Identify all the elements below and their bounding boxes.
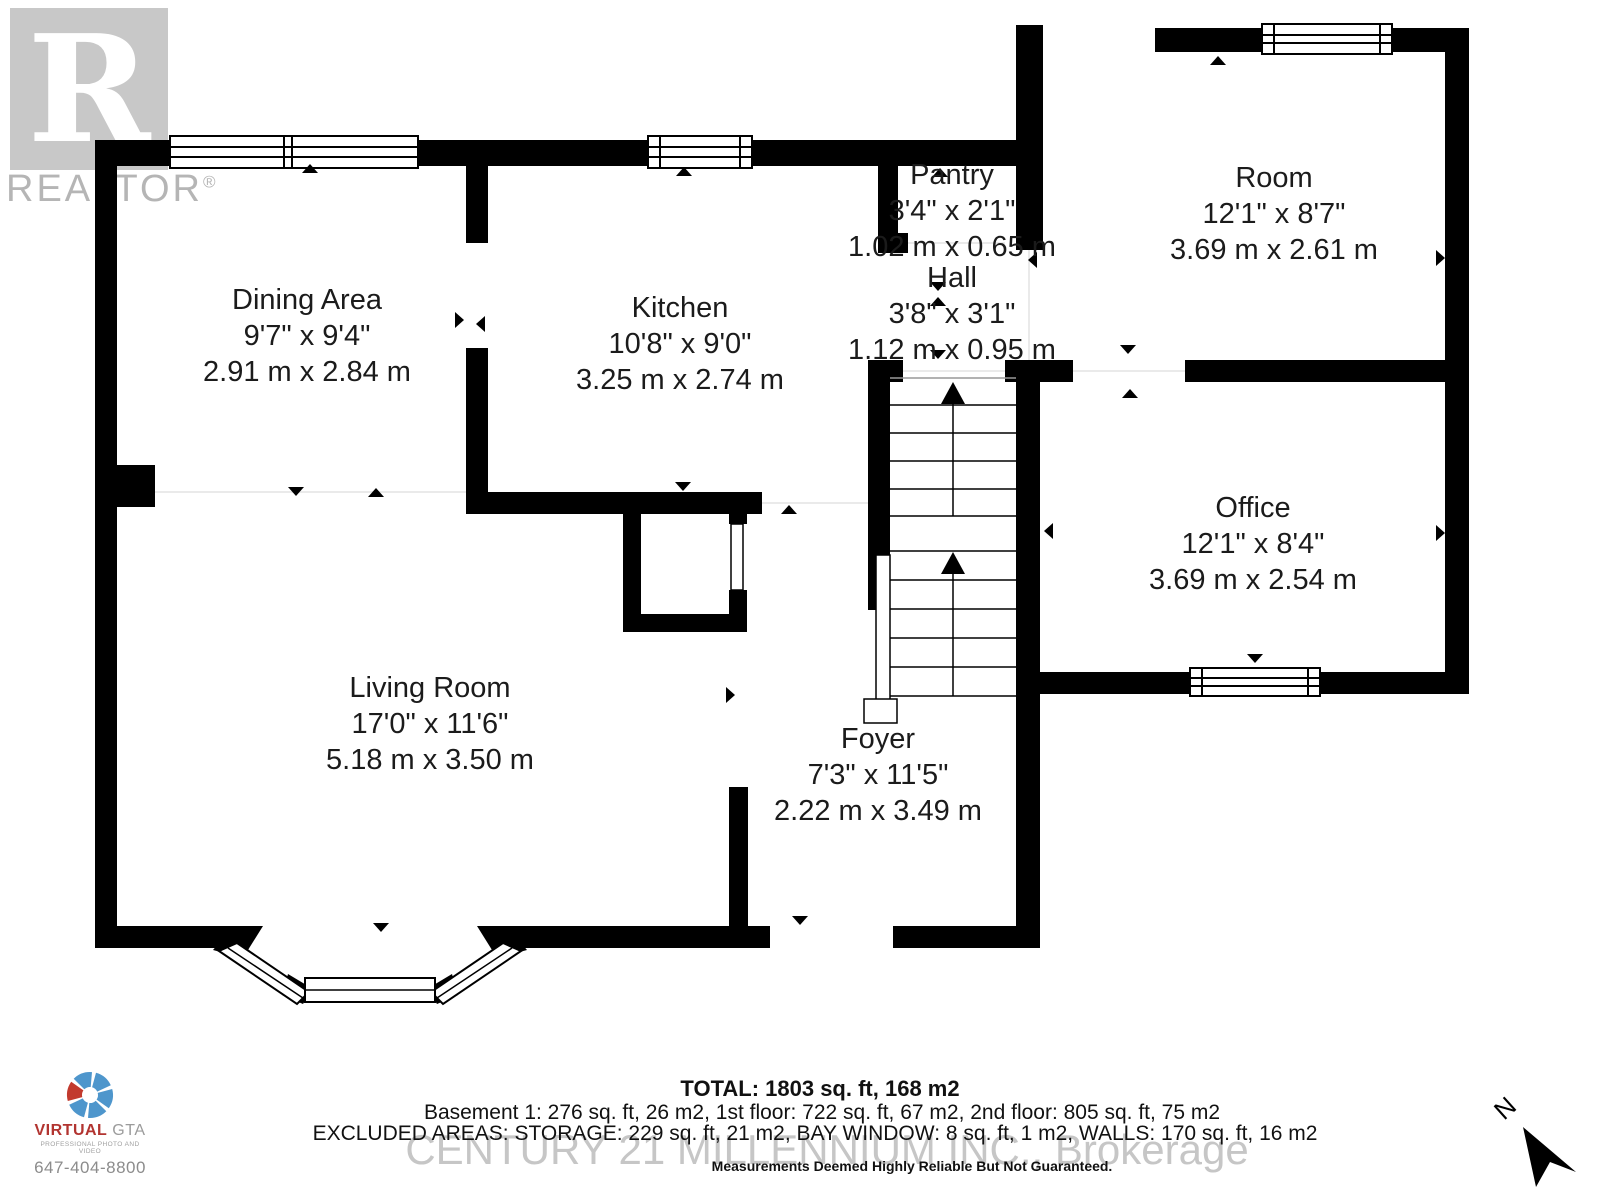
room-dim-imperial: 17'0" x 11'6" bbox=[326, 706, 534, 742]
room-name: Hall bbox=[848, 260, 1056, 296]
room-dim-imperial: 12'1" x 8'7" bbox=[1170, 196, 1378, 232]
room-name: Dining Area bbox=[203, 282, 411, 318]
room-name: Room bbox=[1170, 160, 1378, 196]
room-dim-metric: 2.22 m x 3.49 m bbox=[774, 793, 982, 829]
room-name: Living Room bbox=[326, 670, 534, 706]
room-label-pantry: Pantry 3'4" x 2'1" 1.02 m x 0.65 m bbox=[848, 157, 1056, 265]
room-dim-metric: 3.69 m x 2.61 m bbox=[1170, 232, 1378, 268]
stairs-up-arrow-upper bbox=[941, 382, 965, 404]
room-name: Pantry bbox=[848, 157, 1056, 193]
dining-window bbox=[170, 136, 418, 168]
room-dim-metric: 5.18 m x 3.50 m bbox=[326, 742, 534, 778]
total-area-text: TOTAL: 1803 sq. ft, 168 m2 bbox=[680, 1076, 959, 1102]
aperture-icon bbox=[65, 1070, 115, 1120]
north-arrow: N bbox=[1480, 1085, 1595, 1195]
room-label-room: Room 12'1" x 8'7" 3.69 m x 2.61 m bbox=[1170, 160, 1378, 268]
room-dim-metric: 3.25 m x 2.74 m bbox=[576, 362, 784, 398]
north-arrow-pointer bbox=[1523, 1127, 1576, 1187]
stairs-railing-return bbox=[864, 699, 897, 723]
kitchen-window bbox=[648, 136, 752, 168]
floorplan-page: R REALTOR® CENTURY 21 MILLENNIUM INC., B… bbox=[0, 0, 1600, 1200]
room-dim-imperial: 10'8" x 9'0" bbox=[576, 326, 784, 362]
disclaimer-text: Measurements Deemed Highly Reliable But … bbox=[712, 1158, 1113, 1174]
room-dim-imperial: 7'3" x 11'5" bbox=[774, 757, 982, 793]
virtual-gta-tagline: PROFESSIONAL PHOTO AND VIDEO bbox=[30, 1141, 150, 1155]
room-label-living-room: Living Room 17'0" x 11'6" 5.18 m x 3.50 … bbox=[326, 670, 534, 778]
room-dim-imperial: 12'1" x 8'4" bbox=[1149, 526, 1357, 562]
room-label-dining-area: Dining Area 9'7" x 9'4" 2.91 m x 2.84 m bbox=[203, 282, 411, 390]
room-dim-imperial: 3'8" x 3'1" bbox=[848, 296, 1056, 332]
stairs-railing bbox=[876, 555, 890, 719]
bay-window bbox=[213, 926, 527, 1004]
gta-text: GTA bbox=[112, 1122, 145, 1139]
room-dim-imperial: 3'4" x 2'1" bbox=[848, 193, 1056, 229]
virtual-gta-phone: 647-404-8800 bbox=[30, 1158, 150, 1178]
room-label-foyer: Foyer 7'3" x 11'5" 2.22 m x 3.49 m bbox=[774, 721, 982, 829]
room-dim-metric: 3.69 m x 2.54 m bbox=[1149, 562, 1357, 598]
room-name: Foyer bbox=[774, 721, 982, 757]
room-name: Office bbox=[1149, 490, 1357, 526]
stairs-up-arrow-lower bbox=[941, 552, 965, 574]
office-window bbox=[1190, 668, 1320, 696]
virtual-gta-logo: VIRTUAL GTA PROFESSIONAL PHOTO AND VIDEO… bbox=[30, 1070, 150, 1178]
room-label-hall: Hall 3'8" x 3'1" 1.12 m x 0.95 m bbox=[848, 260, 1056, 368]
room-window bbox=[1262, 24, 1392, 54]
virtual-text: VIRTUAL bbox=[35, 1122, 108, 1139]
room-label-kitchen: Kitchen 10'8" x 9'0" 3.25 m x 2.74 m bbox=[576, 290, 784, 398]
north-label: N bbox=[1488, 1091, 1522, 1126]
room-dim-metric: 2.91 m x 2.84 m bbox=[203, 354, 411, 390]
room-label-office: Office 12'1" x 8'4" 3.69 m x 2.54 m bbox=[1149, 490, 1357, 598]
room-dim-imperial: 9'7" x 9'4" bbox=[203, 318, 411, 354]
closet-door bbox=[731, 524, 743, 590]
excluded-areas-text: EXCLUDED AREAS: STORAGE: 229 sq. ft, 21 … bbox=[313, 1122, 1318, 1146]
room-name: Kitchen bbox=[576, 290, 784, 326]
virtual-gta-name: VIRTUAL GTA bbox=[30, 1122, 150, 1140]
room-dim-metric: 1.12 m x 0.95 m bbox=[848, 332, 1056, 368]
